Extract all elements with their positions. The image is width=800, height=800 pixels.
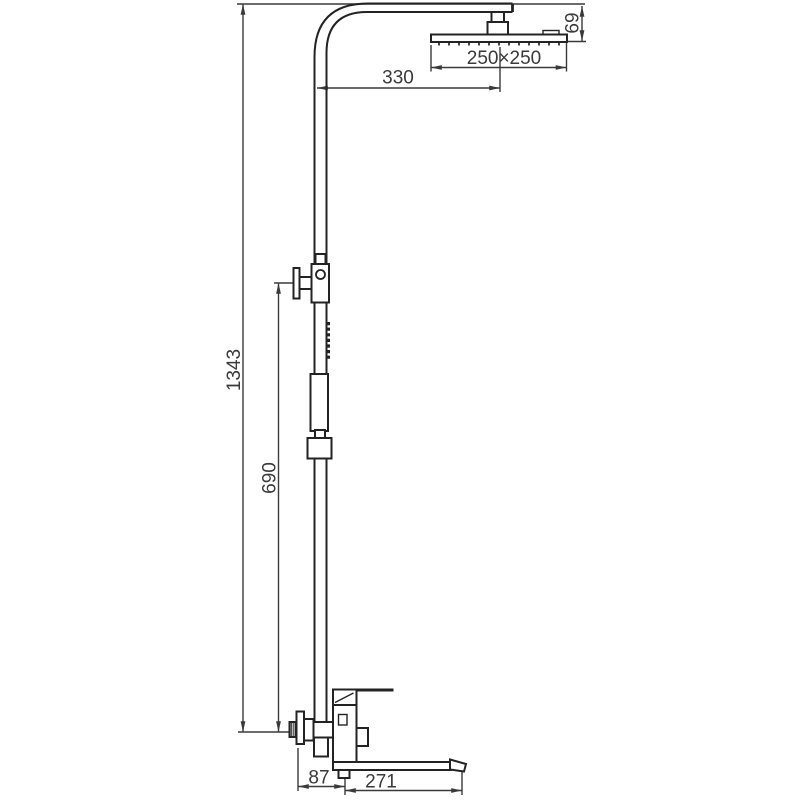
dimension-annotations: 1343 690 330 250×250 69 87 271 [224,4,586,795]
connection-nut [304,719,314,741]
tub-mixer [290,690,467,779]
lower-outlet-nut [314,738,328,757]
dim-text-head-size: 250×250 [467,48,542,69]
spout-body [333,762,451,770]
dim-text-spout-length: 271 [365,772,397,793]
wall-escutcheon [297,712,305,745]
head-plate [431,35,567,43]
dim-text-bracket-height: 690 [260,462,281,494]
dim-text-total-height: 1343 [224,349,245,391]
mid-column [308,303,332,723]
dim-text-arm-reach: 330 [382,68,414,89]
bracket-wall-arm [299,277,312,289]
arrowheads [241,4,585,793]
connector-block [308,438,332,459]
dim-text-head-drop: 69 [563,12,584,33]
dim-text-spout-offset: 87 [308,768,329,789]
drawing-page: 1343 690 330 250×250 69 87 271 [0,0,800,800]
bracket-collar [316,254,326,265]
shower-column-outline [290,4,568,779]
hand-shower-bracket [294,254,330,303]
head-connector-upper [492,12,505,22]
pipe-mid-segment [315,303,327,377]
spout-tip [450,760,466,772]
shower-column-technical-drawing: 1343 690 330 250×250 69 87 271 [0,0,800,800]
aerator-tab [339,770,350,778]
mixer-body [333,705,357,762]
diverter-tab [357,728,369,746]
bracket-wall-flange [294,268,300,299]
slide-tube [311,374,329,431]
head-connector-lower [488,22,509,35]
pipe-lower-segment [315,459,327,723]
rain-shower-head [431,12,567,46]
